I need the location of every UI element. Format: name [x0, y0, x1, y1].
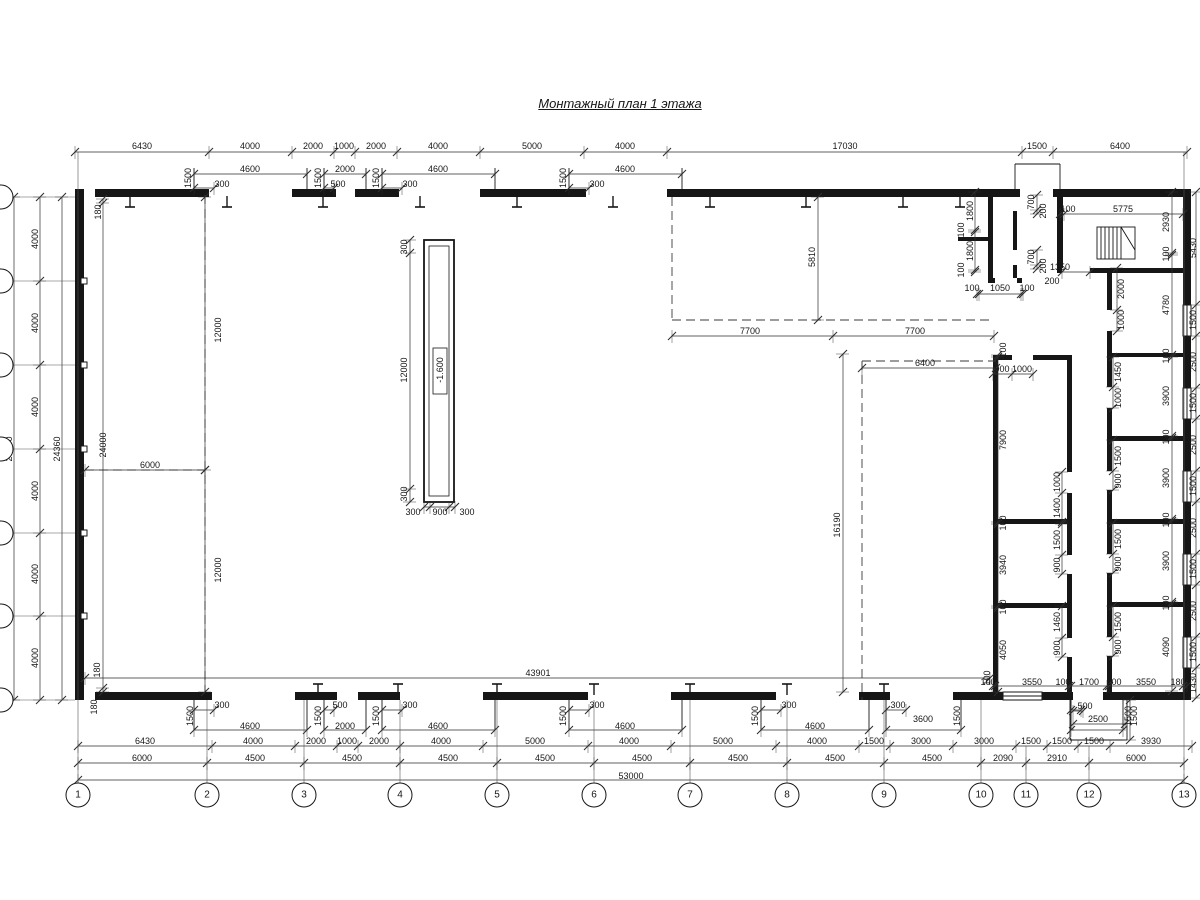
dim-label: 4000: [807, 736, 827, 746]
dim-label: 5810: [807, 247, 817, 267]
dim-label: 300: [214, 700, 229, 710]
axis-number: 5: [494, 790, 500, 801]
window: [1003, 692, 1042, 700]
dim-label: 900: [994, 364, 1009, 374]
axis-bottom: 11: [1014, 746, 1038, 807]
wall: [671, 692, 776, 700]
column-mark: [318, 196, 328, 207]
dim-label: 4500: [632, 753, 652, 763]
axis-number: 12: [1083, 790, 1095, 801]
dim-label: 4600: [615, 164, 635, 174]
dim-label: 24000: [98, 432, 108, 457]
dim-label: 1460: [1052, 612, 1062, 632]
wall: [483, 692, 588, 700]
dim-label: 5000: [713, 736, 733, 746]
wall: [1067, 355, 1072, 472]
dim-label: 300: [399, 239, 409, 254]
axis-bottom: 2: [195, 700, 219, 807]
axis-left: [0, 688, 75, 712]
axis-left: [0, 604, 75, 628]
dim-label: 1400: [1052, 498, 1062, 518]
dim-label: 1500: [1188, 559, 1198, 579]
dim-label: 3900: [1161, 468, 1171, 488]
dim-label: 6430: [135, 736, 155, 746]
dim-label: 3600: [913, 714, 933, 724]
dim-label: 4000: [30, 229, 40, 249]
dim-label: 1500: [1113, 446, 1123, 466]
dimensions-layer: [7, 146, 1200, 787]
dim-label: 100: [956, 222, 966, 237]
axis-bottom: 1: [66, 152, 90, 807]
dim-label: 1450: [1113, 362, 1123, 382]
dimension-line: [33, 193, 46, 704]
axis-circle: [0, 269, 13, 293]
dim-label: 1500: [1129, 706, 1139, 726]
column-mark: [589, 684, 599, 695]
dimension-line: [668, 330, 998, 343]
dim-label: 1500: [1084, 736, 1104, 746]
dim-label: 100: [1161, 512, 1171, 527]
walls-layer: [75, 164, 1191, 740]
dim-label: 900: [432, 507, 447, 517]
dim-label: 100: [1106, 677, 1121, 687]
axis-number: 11: [1021, 790, 1032, 801]
dim-label: 3550: [1136, 677, 1156, 687]
dim-label: 16190: [832, 512, 842, 537]
dim-label: 2500: [1088, 714, 1108, 724]
dim-label: 2930: [1161, 212, 1171, 232]
dim-label: 1430: [1188, 673, 1198, 693]
dim-label: 2500: [1188, 601, 1198, 621]
wall: [75, 189, 84, 700]
axis-number: 8: [784, 790, 790, 801]
dim-label: 2000: [335, 721, 355, 731]
dim-label: 1500: [952, 706, 962, 726]
dim-label: 300: [405, 507, 420, 517]
wall: [1090, 268, 1183, 273]
dim-label: 4000: [30, 481, 40, 501]
wall: [1053, 189, 1190, 197]
dim-label: 100: [998, 599, 1008, 614]
dim-label: 4780: [1161, 295, 1171, 315]
dimension-line: [198, 193, 211, 696]
axis-circle: [0, 604, 13, 628]
dim-label: 4000: [243, 736, 263, 746]
dim-label: 200: [1038, 203, 1048, 218]
dim-label: 900: [1113, 473, 1123, 488]
dim-label: 3930: [1141, 736, 1161, 746]
dim-label: 4500: [245, 753, 265, 763]
column-mark: [81, 278, 87, 284]
axis-circle: [0, 353, 13, 377]
dim-label: 4000: [30, 313, 40, 333]
wall: [1107, 268, 1112, 310]
dim-label: 1500: [313, 706, 323, 726]
dim-label: 43901: [525, 668, 550, 678]
labels-layer: 6430400020001000200040005000400017030150…: [4, 141, 1198, 781]
dim-label: 7700: [905, 326, 925, 336]
dim-label: 1500: [558, 168, 568, 188]
blueprint-page: Монтажный план 1 этажа 64304000200010002…: [0, 0, 1200, 900]
dim-label: 12000: [399, 357, 409, 382]
dim-label: 300: [890, 700, 905, 710]
wall: [1013, 192, 1017, 196]
wall: [295, 692, 337, 700]
dim-label: 300: [214, 179, 229, 189]
dim-label: 4600: [240, 164, 260, 174]
dim-label: 3000: [911, 736, 931, 746]
dim-label: 4000: [30, 564, 40, 584]
dim-label: 2000: [306, 736, 326, 746]
dim-label: 4600: [805, 721, 825, 731]
dim-label: 500: [330, 179, 345, 189]
dim-label: 300: [402, 700, 417, 710]
dim-label: 1500: [1188, 642, 1198, 662]
wall: [1103, 692, 1190, 700]
dim-label: 1000: [337, 736, 357, 746]
dim-label: 1000: [1116, 310, 1126, 330]
dim-label: 6430: [132, 141, 152, 151]
dim-label: 1000: [1012, 364, 1032, 374]
dim-label: 3000: [974, 736, 994, 746]
column-mark: [415, 196, 425, 207]
column-mark: [782, 684, 792, 695]
dim-label: 1500: [1021, 736, 1041, 746]
floor-plan-svg: 6430400020001000200040005000400017030150…: [0, 0, 1200, 900]
wall: [355, 189, 399, 197]
dim-label: 4500: [535, 753, 555, 763]
dim-label: 300: [589, 700, 604, 710]
dim-label: 1000: [1052, 472, 1062, 492]
dim-label: 100: [998, 342, 1008, 357]
axis-number: 9: [881, 790, 887, 801]
axis-number: 7: [687, 790, 693, 801]
column-mark: [125, 196, 135, 207]
dim-label: 5775: [1113, 204, 1133, 214]
dim-label: 100: [1161, 429, 1171, 444]
dim-label: 180: [93, 204, 103, 219]
dim-label: 1500: [750, 706, 760, 726]
dim-label: 100: [956, 262, 966, 277]
axis-circle: [0, 521, 13, 545]
column-mark: [705, 196, 715, 207]
dim-label: 4500: [728, 753, 748, 763]
dim-label: 700: [1026, 194, 1036, 209]
dim-label: 4000: [428, 141, 448, 151]
wall: [667, 189, 1020, 197]
wall: [480, 189, 586, 197]
dim-label: 6000: [140, 460, 160, 470]
wall: [358, 692, 400, 700]
dim-label: 100: [1161, 246, 1171, 261]
dim-label: 2500: [1188, 518, 1198, 538]
dim-label: 200: [1044, 276, 1059, 286]
dim-label: 2000: [335, 164, 355, 174]
dim-label: 1500: [1052, 736, 1072, 746]
axis-bottom: 12: [1077, 746, 1101, 807]
dim-label: 300: [589, 179, 604, 189]
column-mark: [608, 196, 618, 207]
dim-label: 2000: [1116, 279, 1126, 299]
dim-label: 2500: [1188, 435, 1198, 455]
dim-label: 4000: [619, 736, 639, 746]
dim-label: 2000: [303, 141, 323, 151]
axis-bottom: 9: [872, 700, 896, 807]
dim-label: 4600: [428, 721, 448, 731]
axis-left: [0, 353, 75, 377]
dim-label: 2500: [1188, 352, 1198, 372]
dim-label: 5430: [1188, 238, 1198, 258]
dim-label: 1500: [1113, 529, 1123, 549]
axis-left: [0, 269, 75, 293]
dim-label: 4050: [998, 640, 1008, 660]
dim-label: 1000: [334, 141, 354, 151]
dim-label: 4000: [431, 736, 451, 746]
dim-label: 4090: [1161, 637, 1171, 657]
dim-label: 700: [1026, 249, 1036, 264]
axis-number: 6: [591, 790, 597, 801]
axis-circle: [0, 688, 13, 712]
dim-label: 100: [980, 677, 995, 687]
dim-label: 180: [1170, 677, 1185, 687]
dim-label: 6000: [132, 753, 152, 763]
axis-left: [0, 521, 75, 545]
dim-label: 4500: [825, 753, 845, 763]
dim-label: 100: [998, 515, 1008, 530]
dim-label: 300: [459, 507, 474, 517]
axis-number: 1: [75, 790, 81, 801]
dim-label: 900: [1052, 640, 1062, 655]
column-mark: [898, 196, 908, 207]
dim-label: 1500: [1052, 530, 1062, 550]
dim-label: 1500: [1188, 393, 1198, 413]
axis-number: 10: [975, 790, 987, 801]
axis-number: 4: [397, 790, 403, 801]
dim-label: 4500: [438, 753, 458, 763]
dim-label: 3550: [1022, 677, 1042, 687]
dim-label: 1500: [371, 706, 381, 726]
dim-label: 7700: [740, 326, 760, 336]
dim-label: 2090: [993, 753, 1013, 763]
wall: [292, 189, 336, 197]
dim-label: 1500: [864, 736, 884, 746]
dim-label: 1500: [558, 706, 568, 726]
dim-label: 180: [92, 662, 102, 677]
axis-left: [0, 185, 75, 209]
axis-number: 13: [1178, 790, 1190, 801]
dim-label: 6400: [915, 358, 935, 368]
dim-label: 1500: [1027, 141, 1047, 151]
dim-label: 2000: [366, 141, 386, 151]
dim-label: 3900: [1161, 386, 1171, 406]
dim-label: 1800: [965, 201, 975, 221]
dim-label: 1700: [1079, 677, 1099, 687]
axis-bottom: 10: [969, 700, 993, 807]
dim-label: 53000: [618, 771, 643, 781]
dim-label: 200: [1038, 258, 1048, 273]
wall: [859, 692, 890, 700]
axis-circle: [0, 185, 13, 209]
dim-label: 100: [1060, 204, 1075, 214]
dim-label: 3940: [998, 555, 1008, 575]
dim-label: 2910: [1047, 753, 1067, 763]
wall: [95, 692, 212, 700]
wall: [1013, 265, 1017, 278]
column-mark: [81, 446, 87, 452]
plan-line: [1121, 227, 1135, 250]
dim-label: 12000: [213, 557, 223, 582]
dim-label: 900: [1113, 639, 1123, 654]
dim-label: 180: [89, 699, 99, 714]
dim-label: 4500: [922, 753, 942, 763]
dim-label: 5000: [525, 736, 545, 746]
dim-label: -1.600: [435, 357, 445, 383]
axis-bottom: 6: [582, 700, 606, 807]
dim-label: 1500: [371, 168, 381, 188]
dim-label: 100: [1019, 283, 1034, 293]
column-mark: [81, 530, 87, 536]
dim-label: 7900: [998, 430, 1008, 450]
dim-label: 500: [332, 700, 347, 710]
dim-label: 4500: [342, 753, 362, 763]
dim-label: 100: [1161, 348, 1171, 363]
dim-label: 12000: [213, 317, 223, 342]
dim-label: 4600: [240, 721, 260, 731]
axis-bottom: 8: [775, 700, 799, 807]
dim-label: 4000: [30, 397, 40, 417]
dim-label: 1500: [1113, 612, 1123, 632]
axis-bottom: 5: [485, 700, 509, 807]
dim-label: 1500: [1188, 476, 1198, 496]
dim-label: 4000: [240, 141, 260, 151]
dim-label: 500: [1077, 701, 1092, 711]
page-title: Монтажный план 1 этажа: [480, 96, 760, 111]
dim-label: 4000: [615, 141, 635, 151]
dim-label: 17030: [832, 141, 857, 151]
dim-label: 1350: [1050, 262, 1070, 272]
dim-label: 1500: [313, 168, 323, 188]
dim-label: 1500: [183, 168, 193, 188]
axis-number: 3: [301, 790, 307, 801]
dim-label: 300: [402, 179, 417, 189]
dim-label: 100: [1055, 677, 1070, 687]
column-mark: [512, 196, 522, 207]
dim-label: 2000: [369, 736, 389, 746]
dim-label: 1000: [1113, 388, 1123, 408]
dim-label: 4600: [615, 721, 635, 731]
wall: [953, 692, 1003, 700]
wall: [1013, 211, 1017, 250]
dim-label: 3900: [1161, 551, 1171, 571]
dim-label: 100: [1161, 595, 1171, 610]
column-mark: [81, 613, 87, 619]
dim-label: 5000: [522, 141, 542, 151]
column-mark: [801, 196, 811, 207]
dim-label: 1800: [965, 241, 975, 261]
dim-label: 4000: [30, 648, 40, 668]
outline-box: [1097, 227, 1135, 259]
dim-label: 6400: [1110, 141, 1130, 151]
dim-label: 300: [781, 700, 796, 710]
column-mark: [955, 196, 965, 207]
dim-label: 4600: [428, 164, 448, 174]
dim-label: 100: [964, 283, 979, 293]
dim-label: 300: [399, 486, 409, 501]
wall: [1042, 692, 1073, 700]
dim-label: 1500: [1188, 310, 1198, 330]
dim-label: 900: [1113, 556, 1123, 571]
wall: [1033, 355, 1072, 360]
dim-label: 900: [1052, 557, 1062, 572]
axis-number: 2: [204, 790, 210, 801]
dim-label: 6000: [1126, 753, 1146, 763]
axis-bottom: 4: [388, 700, 412, 807]
column-mark: [81, 362, 87, 368]
dim-label: 1050: [990, 283, 1010, 293]
dim-label: 1500: [185, 706, 195, 726]
column-mark: [222, 196, 232, 207]
